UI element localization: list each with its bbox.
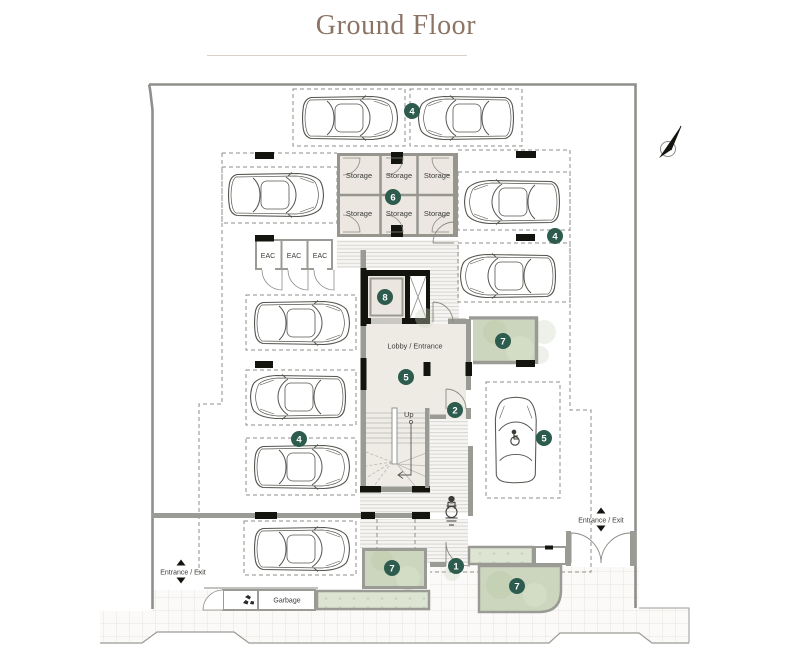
svg-text:1: 1: [453, 562, 459, 573]
svg-text:Up: Up: [404, 410, 414, 419]
svg-text:EAC: EAC: [261, 253, 275, 260]
svg-text:7: 7: [500, 337, 505, 348]
svg-text:4: 4: [409, 107, 415, 118]
svg-text:2: 2: [452, 406, 457, 417]
svg-text:6: 6: [390, 193, 395, 204]
svg-text:Storage: Storage: [346, 171, 372, 180]
svg-text:Entrance / Exit: Entrance / Exit: [578, 518, 624, 525]
svg-text:8: 8: [382, 293, 387, 304]
svg-text:4: 4: [552, 232, 558, 243]
svg-text:Storage: Storage: [424, 209, 450, 218]
svg-text:EAC: EAC: [313, 253, 327, 260]
svg-text:Storage: Storage: [386, 209, 412, 218]
svg-text:5: 5: [403, 373, 409, 384]
svg-text:Entrance / Exit: Entrance / Exit: [160, 570, 206, 577]
svg-text:EAC: EAC: [287, 253, 301, 260]
svg-text:Ground Floor: Ground Floor: [316, 10, 476, 41]
svg-text:Lobby / Entrance: Lobby / Entrance: [387, 342, 442, 351]
svg-text:Storage: Storage: [386, 171, 412, 180]
svg-text:7: 7: [389, 564, 394, 575]
svg-text:7: 7: [514, 582, 519, 593]
svg-text:5: 5: [541, 434, 547, 445]
svg-text:4: 4: [296, 435, 302, 446]
svg-text:Storage: Storage: [346, 209, 372, 218]
svg-text:Storage: Storage: [424, 171, 450, 180]
svg-text:Garbage: Garbage: [273, 598, 300, 605]
